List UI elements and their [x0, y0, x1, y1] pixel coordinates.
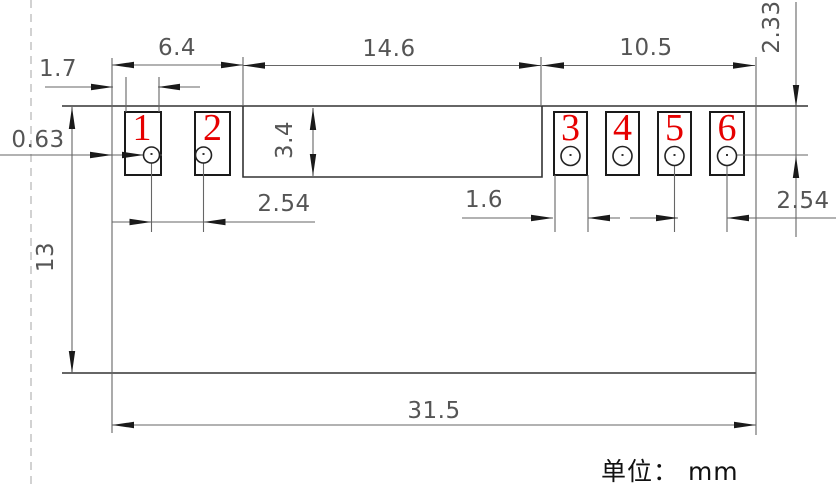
pad-3-number: 3: [561, 107, 580, 149]
dimension-and-extension-lines: [0, 2, 836, 435]
dim-6-4: 6.4: [158, 35, 196, 61]
dim-13: 13: [33, 242, 59, 272]
dim-2-33: 2.33: [759, 0, 785, 53]
dim-0-63: 0.63: [11, 127, 64, 153]
dim-1-7: 1.7: [39, 56, 77, 82]
pad-2-number: 2: [203, 107, 222, 149]
dimension-drawing-page: 1 2 3 4 5 6 6.4 14.6 10.5 1.7 0.63 13 3.…: [0, 0, 836, 490]
component-outline: [62, 106, 808, 373]
dim-10-5: 10.5: [619, 35, 672, 61]
unit-note: 单位： mm: [601, 457, 739, 486]
dim-1-6: 1.6: [465, 187, 503, 213]
pad-4-number: 4: [613, 107, 632, 149]
pad-5-number: 5: [665, 107, 684, 149]
hole-center-marks: [151, 154, 729, 155]
dim-31-5: 31.5: [407, 398, 460, 424]
dim-14-6: 14.6: [362, 36, 415, 62]
pad-holes: [144, 147, 737, 166]
dim-2-54-left: 2.54: [257, 191, 310, 217]
pad-1-number: 1: [133, 107, 152, 149]
dim-2-54-right: 2.54: [776, 188, 829, 214]
dim-3-4: 3.4: [272, 121, 298, 159]
pad-6-number: 6: [718, 107, 737, 149]
footprint-dimension-drawing: 1 2 3 4 5 6 6.4 14.6 10.5 1.7 0.63 13 3.…: [0, 0, 836, 490]
